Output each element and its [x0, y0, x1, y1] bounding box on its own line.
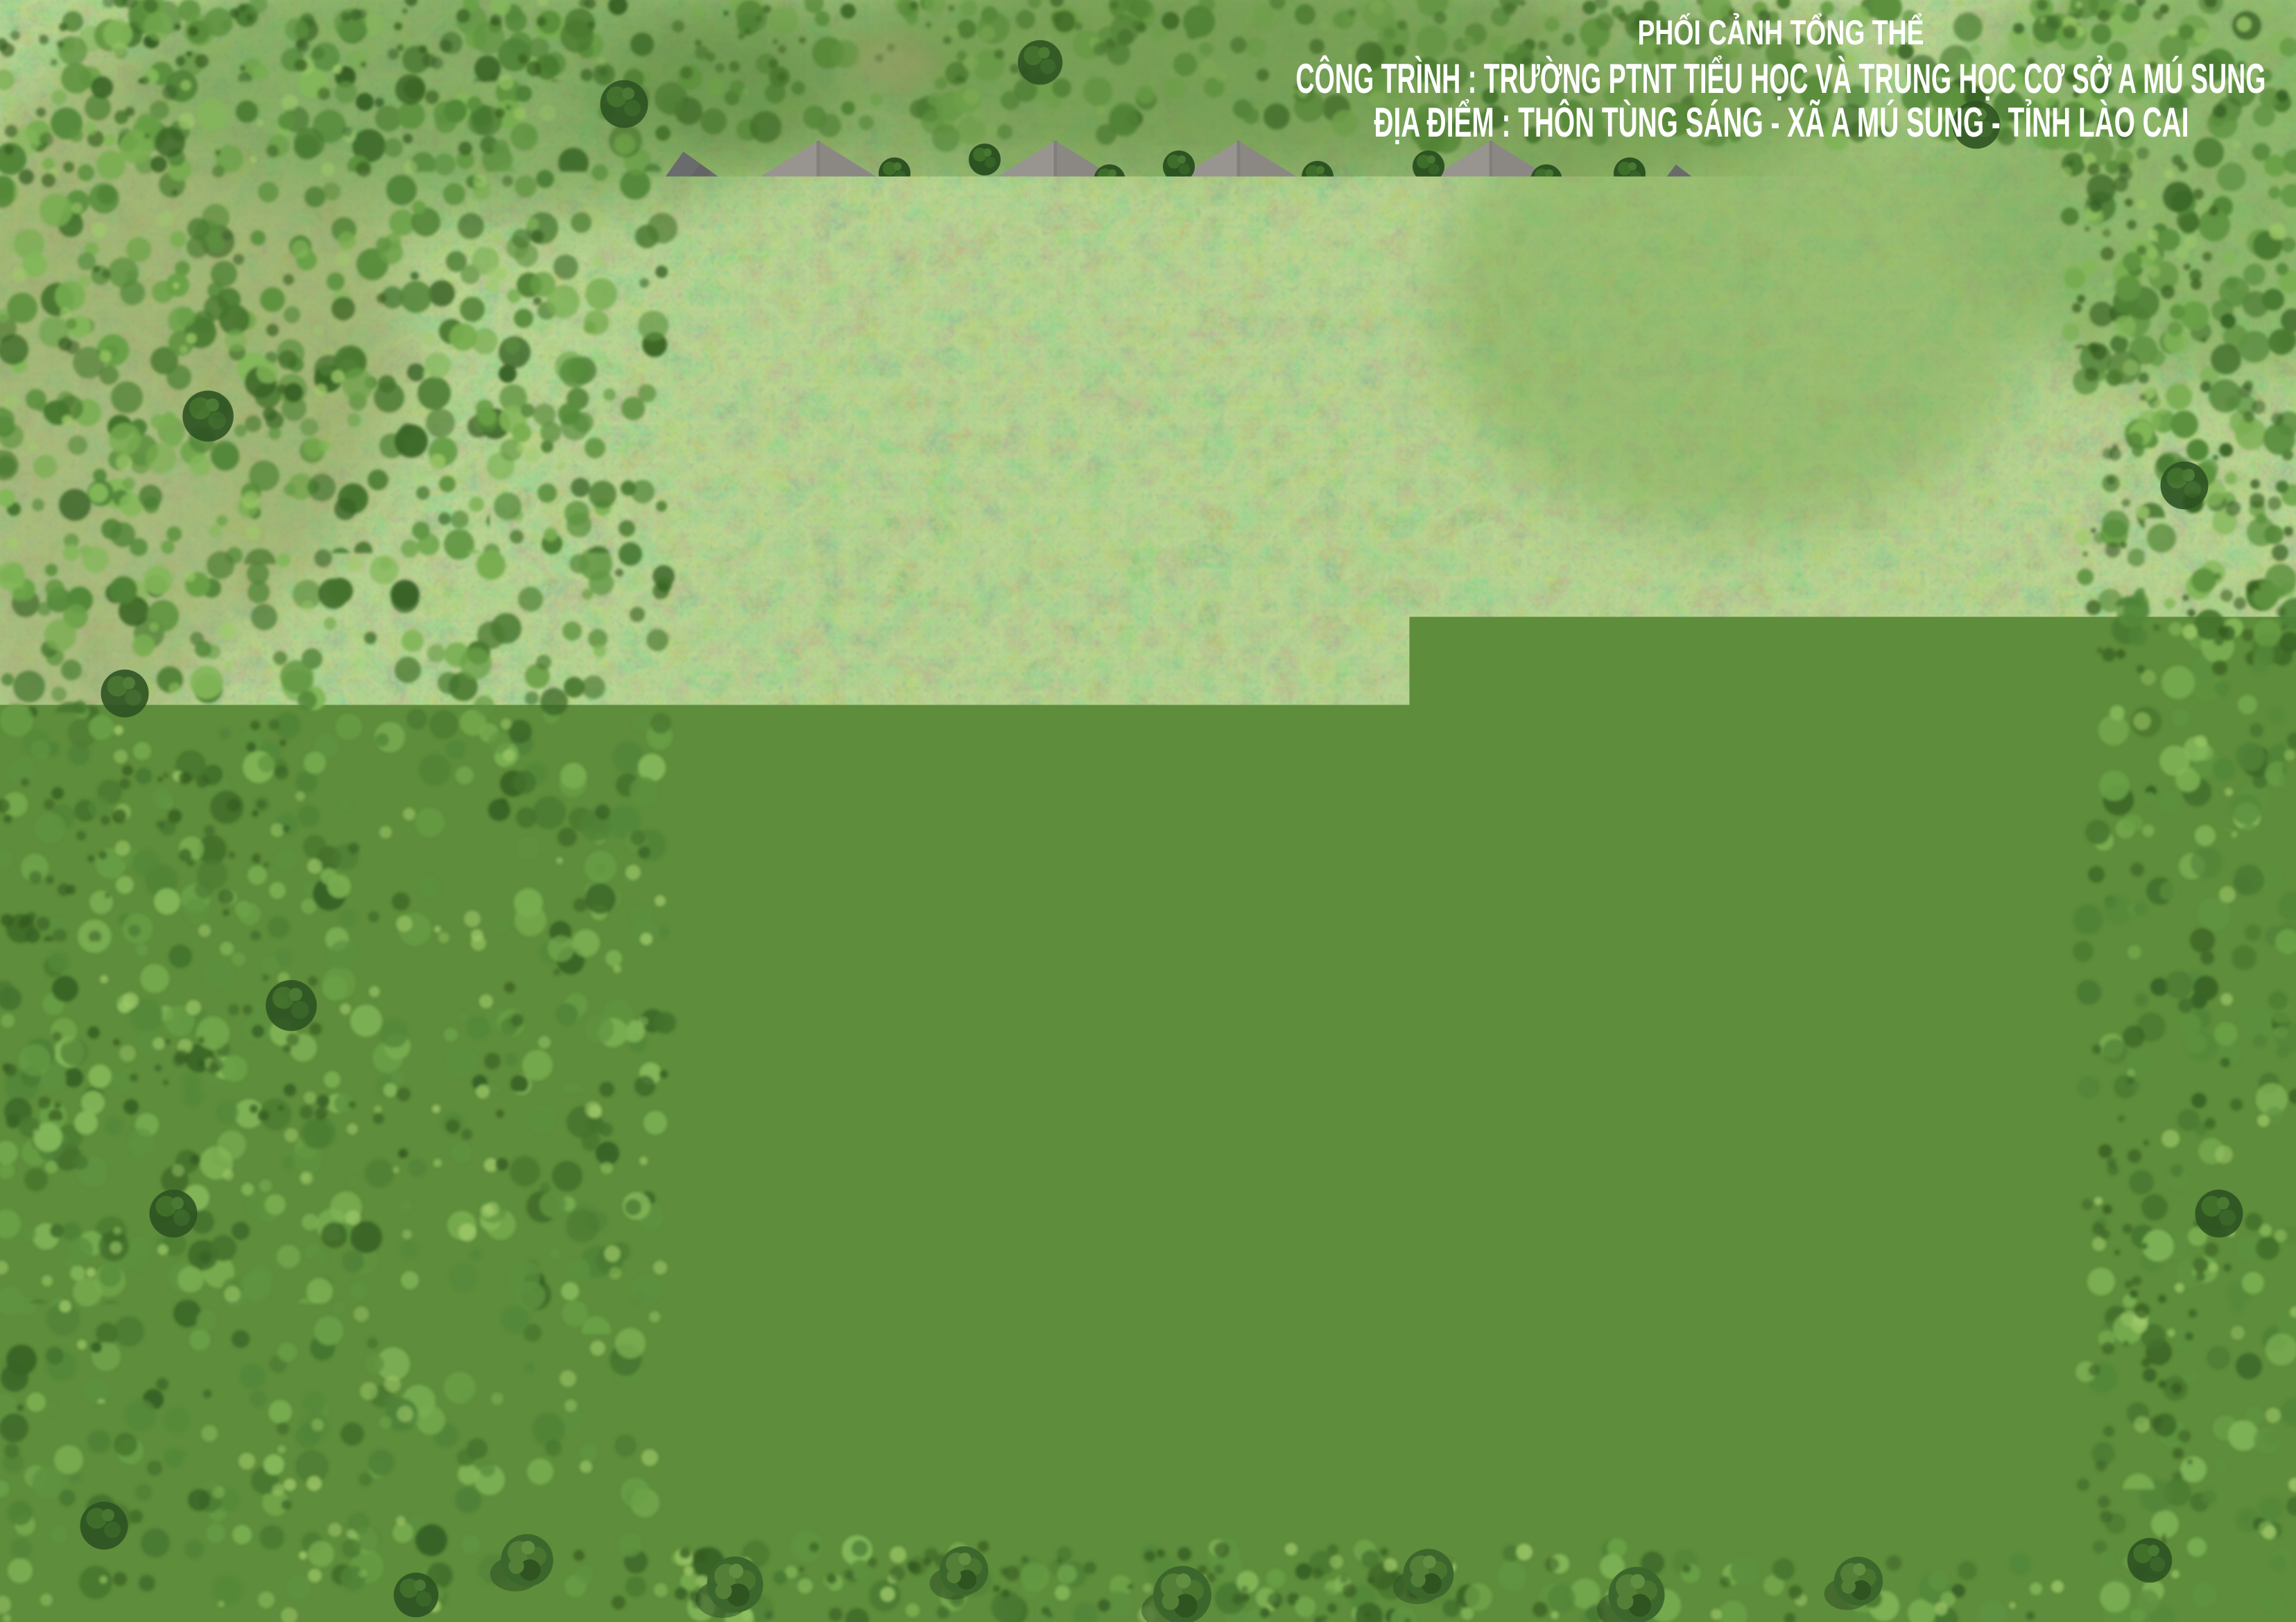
- svg-text:BAOLAOCAI: BAOLAOCAI: [1832, 1523, 2295, 1617]
- svg-text:CÔNG TRÌNH : TRƯỜNG PTNT TIỂU: CÔNG TRÌNH : TRƯỜNG PTNT TIỂU HỌC VÀ TRU…: [1296, 55, 2266, 102]
- svg-text:ĐỊA ĐIỂM : THÔN TÙNG SÁNG - XÃ: ĐỊA ĐIỂM : THÔN TÙNG SÁNG - XÃ A MÚ SUNG…: [1374, 99, 2189, 146]
- svg-text:PHỐI CẢNH TỔNG THỂ: PHỐI CẢNH TỔNG THỂ: [1638, 12, 1924, 52]
